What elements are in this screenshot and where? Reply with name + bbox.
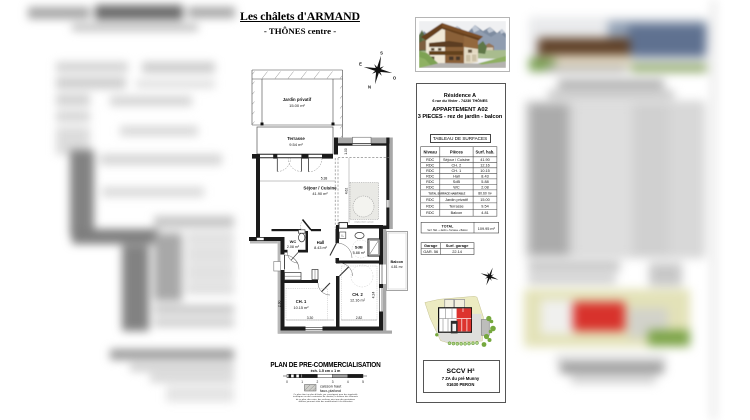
svg-text:RDC: RDC [426, 204, 434, 208]
svg-text:Jardin privatif: Jardin privatif [445, 198, 469, 202]
svg-text:Surf. garage: Surf. garage [446, 243, 470, 248]
svg-text:RDC: RDC [426, 164, 434, 168]
svg-text:SdB: SdB [355, 245, 363, 250]
svg-text:4.24: 4.24 [372, 292, 376, 299]
svg-text:Niveau: Niveau [423, 149, 437, 154]
svg-text:15.00: 15.00 [480, 198, 490, 202]
svg-text:10.15 m²: 10.15 m² [294, 306, 310, 310]
svg-text:CH. 2: CH. 2 [352, 292, 363, 297]
svg-text:2.90: 2.90 [277, 300, 281, 307]
svg-text:2: 2 [317, 379, 319, 383]
svg-text:5.38: 5.38 [321, 177, 328, 181]
svg-text:WC: WC [453, 186, 460, 190]
svg-text:2.82: 2.82 [356, 316, 363, 320]
svg-text:CH. 2: CH. 2 [452, 164, 462, 168]
svg-text:N: N [368, 85, 371, 90]
svg-text:10.15: 10.15 [480, 169, 490, 173]
svg-text:E: E [359, 62, 362, 67]
svg-text:emplacement caisson: emplacement caisson [354, 221, 373, 224]
svg-text:3: 3 [332, 379, 334, 383]
svg-text:RDC: RDC [426, 198, 434, 202]
svg-text:RDC: RDC [426, 158, 434, 162]
svg-text:O: O [393, 76, 397, 81]
svg-text:SdB: SdB [453, 180, 461, 184]
svg-text:RDC: RDC [426, 180, 434, 184]
svg-text:4: 4 [347, 379, 349, 383]
svg-text:TOTAL: TOTAL [442, 225, 454, 229]
svg-text:41.90: 41.90 [480, 158, 490, 162]
svg-text:Balcon: Balcon [451, 211, 463, 215]
svg-text:4.81 m²: 4.81 m² [391, 265, 404, 269]
svg-text:5.88 m²: 5.88 m² [353, 251, 366, 255]
svg-text:12.16: 12.16 [480, 164, 490, 168]
svg-text:Jardin privatif: Jardin privatif [283, 97, 312, 102]
svg-text:Garage: Garage [424, 243, 438, 248]
svg-text:9.54 m²: 9.54 m² [289, 142, 303, 147]
svg-text:Séjour / Cuisine: Séjour / Cuisine [443, 158, 470, 162]
svg-text:Séjour / Cuisine: Séjour / Cuisine [303, 186, 337, 191]
svg-text:Pièces: Pièces [450, 149, 464, 154]
svg-text:RDC: RDC [426, 175, 434, 179]
svg-text:RDC: RDC [426, 211, 434, 215]
svg-text:8.43: 8.43 [481, 175, 488, 179]
svg-text:GAR. 56: GAR. 56 [423, 249, 438, 254]
svg-text:RDC: RDC [426, 169, 434, 173]
svg-text:1.00: 1.00 [344, 148, 348, 154]
svg-text:CH. 1: CH. 1 [452, 169, 462, 173]
svg-text:5.88: 5.88 [481, 180, 488, 184]
svg-text:Hall: Hall [317, 240, 325, 245]
svg-text:faux-plafond: faux-plafond [320, 389, 341, 393]
svg-text:caisson haut: caisson haut [320, 384, 342, 388]
svg-text:41.90 m²: 41.90 m² [312, 191, 328, 196]
svg-text:Terrasse: Terrasse [287, 136, 305, 141]
svg-text:4.81: 4.81 [481, 211, 488, 215]
svg-text:RDC: RDC [426, 186, 434, 190]
svg-text:5: 5 [362, 379, 364, 383]
svg-text:15.00 m²: 15.00 m² [289, 103, 305, 108]
svg-text:1: 1 [301, 379, 303, 383]
svg-text:Hall: Hall [453, 175, 460, 179]
svg-text:109.95 m²: 109.95 m² [478, 227, 496, 231]
svg-text:TOTAL SURFACE HABITABLE: TOTAL SURFACE HABITABLE [428, 191, 465, 195]
svg-text:Surf. hab.: Surf. hab. [476, 149, 495, 154]
svg-text:S: S [380, 51, 383, 56]
svg-text:0: 0 [286, 379, 288, 383]
svg-text:Terrasse: Terrasse [449, 204, 464, 208]
svg-text:Balcon: Balcon [390, 260, 403, 264]
svg-text:2.08: 2.08 [481, 186, 488, 190]
svg-text:22.14: 22.14 [452, 249, 463, 254]
svg-text:9.54: 9.54 [481, 204, 488, 208]
svg-text:2.08 m²: 2.08 m² [287, 245, 300, 249]
svg-text:Surf. Hab. + Jardin + Terrasse: Surf. Hab. + Jardin + Terrasse + Balcon [427, 229, 468, 232]
svg-text:8.43 m²: 8.43 m² [314, 246, 328, 250]
svg-text:4.62: 4.62 [344, 188, 348, 195]
svg-text:80.60 m²: 80.60 m² [478, 191, 492, 195]
svg-text:CH. 1: CH. 1 [296, 299, 307, 304]
svg-text:WC: WC [290, 239, 297, 244]
svg-text:12.16 m²: 12.16 m² [350, 299, 366, 303]
svg-text:3.30: 3.30 [307, 316, 314, 320]
